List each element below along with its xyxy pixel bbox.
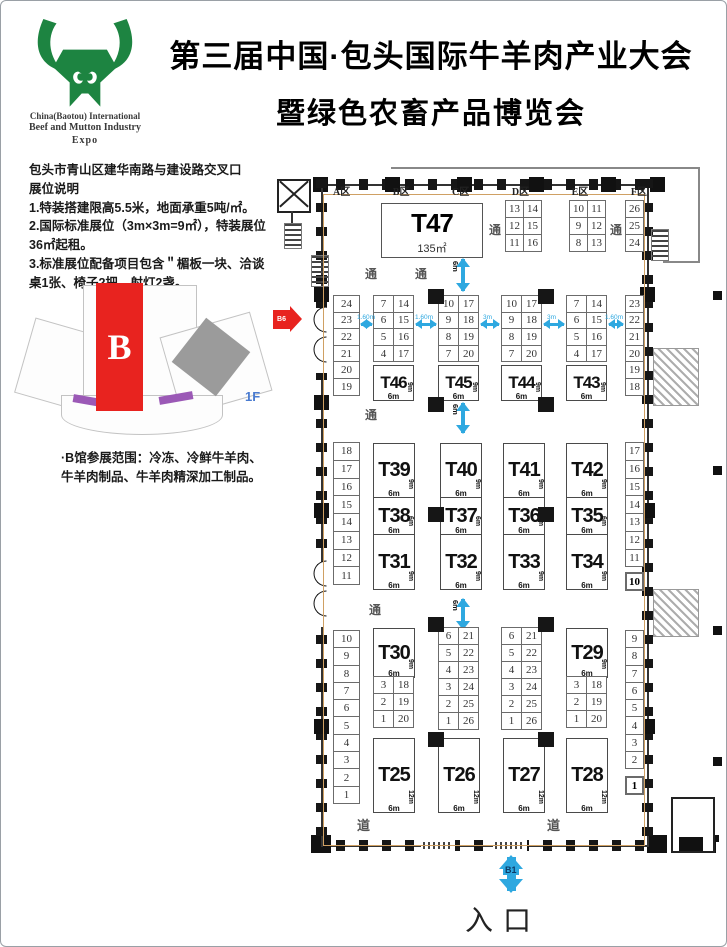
booth-number-cell: 10 — [501, 295, 522, 313]
booth-depth-label: 12m — [407, 790, 414, 804]
pillar — [428, 507, 444, 522]
aisle-width-label: 6m — [451, 600, 460, 611]
booth-depth-label: 9m — [599, 382, 606, 392]
booth-number-column: 14151617 — [393, 296, 414, 362]
booth-label: T36 — [508, 505, 539, 528]
booth-number-cell: 7 — [438, 345, 459, 363]
booth-number-cell: 20 — [586, 710, 607, 728]
booth-number-cell: 10 — [569, 200, 588, 218]
booth-number-cell: 22 — [521, 644, 542, 662]
booth-label: T33 — [508, 551, 539, 574]
booth-number-cell: 14 — [523, 200, 542, 218]
booth-label: T31 — [378, 551, 409, 574]
zone-label-c: C区 — [452, 183, 469, 198]
aisle-width-arrow — [461, 403, 465, 433]
booth-number-cell: 2 — [373, 693, 394, 711]
booth-number-cell: 11 — [505, 234, 524, 252]
booth-number-cell: 7 — [333, 682, 360, 700]
outer-column — [713, 626, 722, 635]
booth-t39: T39 6m 9m — [373, 443, 415, 498]
booth-t29: T29 6m 9m — [566, 628, 608, 678]
booth-number-column: 7654 — [373, 296, 394, 362]
gap-arrow — [416, 323, 436, 326]
booth-number-cell: 5 — [333, 716, 360, 734]
booth-number-cell: 9 — [333, 647, 360, 665]
booth-number-cell: 23 — [458, 661, 479, 679]
gap-width-label: 3m — [547, 314, 556, 321]
stairs-icon — [284, 223, 302, 249]
pillar — [538, 732, 554, 747]
hatched-service-area — [653, 589, 699, 637]
pillar — [538, 507, 554, 522]
booth-number-cell: 1 — [438, 712, 459, 730]
booth-number-cell: 22 — [333, 328, 360, 346]
booth-number-cell: 26 — [458, 712, 479, 730]
booth-number-cell: 20 — [625, 345, 644, 363]
booth-number-cell: 17 — [625, 442, 644, 461]
booth-number-column: 1 — [625, 777, 644, 795]
gap-width-label: 1.60m — [415, 314, 433, 321]
hall-b-letter: B — [107, 326, 131, 368]
booth-t40: T40 6m 9m — [440, 443, 482, 498]
gap-width-label: 1.60m — [605, 314, 623, 321]
zone-label-b: B区 — [393, 183, 410, 198]
booth-number-column: 17181920 — [458, 296, 479, 362]
booth-number-cell: 14 — [586, 295, 607, 313]
booth-number-cell: 19 — [521, 328, 542, 346]
page-title: 第三届中国·包头国际牛羊肉产业大会 暨绿色农畜产品博览会 — [141, 31, 721, 132]
booth-number-cell: 20 — [393, 710, 414, 728]
booth-number-cell: 18 — [586, 676, 607, 694]
booth-number-cell: 18 — [625, 378, 644, 396]
booth-depth-label: 9m — [600, 479, 607, 489]
booth-number-cell: 18 — [393, 676, 414, 694]
booth-label: T37 — [445, 505, 476, 528]
booth-number-cell: 9 — [625, 630, 644, 648]
zone-label-d: D区 — [512, 183, 529, 198]
booth-depth-label: 6m — [600, 516, 607, 526]
venue-address: 包头市青山区建华南路与建设路交叉口 — [29, 161, 267, 180]
booth-number-column: 1098 — [569, 201, 588, 252]
booth-number-cell: 11 — [625, 549, 644, 568]
pillar — [428, 617, 444, 632]
booth-number-column: 14151617 — [586, 296, 607, 362]
booth-number-cell: 23 — [521, 661, 542, 679]
note-2: 2.国际标准展位（3m×3m=9㎡），特装展位36㎡起租。 — [29, 217, 267, 255]
booth-number-cell: 2 — [333, 768, 360, 786]
booth-t31: T31 6m 9m — [373, 534, 415, 590]
road-label: 道 — [547, 815, 560, 834]
booth-depth-label: 9m — [534, 382, 541, 392]
booth-number-column: 17181920 — [521, 296, 542, 362]
booth-number-cell: 12 — [333, 549, 360, 568]
pillar — [538, 397, 554, 412]
booth-number-cell: 24 — [521, 678, 542, 696]
booth-number-column: 181920 — [586, 677, 607, 728]
booth-depth-label: 9m — [407, 659, 414, 669]
booth-t41: T41 6m 9m — [503, 443, 545, 498]
booth-label: T44 — [508, 373, 534, 393]
gate-b6-label: B6 — [273, 310, 290, 329]
booth-number-column: 262524 — [625, 201, 644, 252]
booth-t42: T42 6m 9m — [566, 443, 608, 498]
booth-number-cell: 21 — [333, 345, 360, 363]
booth-number-cell: 3 — [625, 734, 644, 752]
booth-number-column: 7654 — [566, 296, 587, 362]
booth-width-label: 6m — [502, 392, 541, 401]
booth-number-cell: 13 — [333, 531, 360, 550]
booth-number-column: 10987654321 — [333, 631, 360, 804]
booth-depth-label: 9m — [407, 571, 414, 581]
booth-label: T35 — [571, 505, 602, 528]
booth-number-column: 321 — [566, 677, 587, 728]
booth-number-cell: 1 — [333, 786, 360, 804]
booth-number-cell: 16 — [393, 328, 414, 346]
booth-t26: T26 6m 12m — [438, 738, 480, 813]
booth-t27: T27 6m 12m — [503, 738, 545, 813]
booth-number-cell: 15 — [625, 478, 644, 497]
outer-wall-line-top — [391, 167, 700, 169]
bull-head-icon — [30, 19, 140, 111]
booth-number-cell: 8 — [501, 328, 522, 346]
booth-number-cell: 19 — [393, 693, 414, 711]
booth-label: T26 — [443, 764, 474, 787]
booth-number-cell: 4 — [373, 345, 394, 363]
gap-arrow — [609, 323, 623, 326]
booth-number-cell: 6 — [625, 682, 644, 700]
entrance-gate-label: B1 — [503, 865, 519, 875]
booth-number-cell: 10 — [625, 572, 644, 591]
booth-number-cell: 4 — [625, 716, 644, 734]
title-line1: 第三届中国·包头国际牛羊肉产业大会 — [141, 31, 721, 76]
booth-t47: T47 135㎡ — [381, 203, 483, 258]
booth-number-cell: 3 — [373, 676, 394, 694]
booth-t30: T30 6m 9m — [373, 628, 415, 678]
zone-label-f: F区 — [631, 183, 647, 198]
booth-number-cell: 14 — [393, 295, 414, 313]
booth-depth-label: 9m — [474, 571, 481, 581]
booth-number-column: 181920 — [393, 677, 414, 728]
hatched-service-area — [653, 348, 699, 406]
booth-number-column: 10987 — [501, 296, 522, 362]
booth-number-cell: 19 — [333, 378, 360, 396]
booth-number-column: 321 — [373, 677, 394, 728]
booth-number-cell: 12 — [505, 217, 524, 235]
booth-number-cell: 17 — [393, 345, 414, 363]
outer-wall-line-right — [698, 167, 700, 263]
booth-label: T34 — [571, 551, 602, 574]
booth-number-cell: 3 — [333, 751, 360, 769]
booth-number-column: 212223242526 — [458, 628, 479, 730]
booth-number-column: 242322212019 — [333, 296, 360, 396]
booth-number-cell: 4 — [501, 661, 522, 679]
booth-number-cell: 13 — [625, 513, 644, 532]
aisle-width-label: 6m — [451, 404, 460, 415]
booth-number-cell: 21 — [625, 328, 644, 346]
gap-width-label: 1.60m — [357, 314, 375, 321]
aisle-label: 通 — [489, 221, 501, 238]
stairs-icon — [651, 229, 669, 261]
booth-number-cell: 1 — [501, 712, 522, 730]
aisle-label: 通 — [610, 221, 622, 238]
booth-number-cell: 5 — [566, 328, 587, 346]
booth-number-cell: 16 — [586, 328, 607, 346]
booth-number-cell: 8 — [625, 647, 644, 665]
booth-number-column: 212223242526 — [521, 628, 542, 730]
pillar — [428, 397, 444, 412]
booth-depth-label: 12m — [537, 790, 544, 804]
booth-number-column: 131211 — [505, 201, 524, 252]
notes-heading: 展位说明 — [29, 180, 267, 199]
hall-b-marker: B — [96, 283, 143, 411]
booth-number-column: 654321 — [501, 628, 522, 730]
booth-number-cell: 5 — [501, 644, 522, 662]
booth-t25: T25 6m 12m — [373, 738, 415, 813]
booth-number-column: 232221201918 — [625, 296, 644, 396]
booth-number-cell: 11 — [333, 566, 360, 585]
booth-number-cell: 1 — [566, 710, 587, 728]
aisle-width-label: 6m — [451, 261, 460, 272]
booth-label: T45 — [445, 373, 471, 393]
booth-number-cell: 5 — [438, 644, 459, 662]
booth-t38: T38 6m 6m — [373, 497, 415, 535]
booth-number-cell: 12 — [625, 531, 644, 550]
booth-number-column: 98765432 — [625, 631, 644, 769]
expo-logo: China(Baotou) International Beef and Mut… — [15, 19, 155, 147]
booth-number-cell: 2 — [625, 751, 644, 769]
booth-depth-label: 9m — [474, 479, 481, 489]
booth-number-cell: 24 — [625, 234, 644, 252]
gap-arrow — [544, 323, 564, 326]
gap-arrow — [361, 323, 372, 326]
booth-notes-panel: 包头市青山区建华南路与建设路交叉口 展位说明 1.特装搭建限高5.5米，地面承重… — [29, 161, 267, 292]
booth-number-column: 10 — [625, 573, 644, 591]
booth-number-cell: 7 — [373, 295, 394, 313]
booth-number-cell: 24 — [333, 295, 360, 313]
booth-number-column: 141516 — [523, 201, 542, 252]
booth-t37: T37 6m 6m — [440, 497, 482, 535]
booth-depth-label: 9m — [406, 382, 413, 392]
booth-label: T42 — [571, 459, 602, 482]
booth-number-cell: 7 — [501, 345, 522, 363]
booth-number-cell: 1 — [625, 776, 644, 795]
booth-number-cell: 13 — [587, 234, 606, 252]
booth-number-cell: 19 — [586, 693, 607, 711]
booth-number-cell: 20 — [458, 345, 479, 363]
booth-width-label: 6m — [504, 581, 544, 590]
booth-depth-label: 12m — [472, 790, 479, 804]
zone-label-a: A区 — [333, 183, 350, 198]
entrance-label: 入口 — [465, 899, 541, 939]
booth-number-cell: 2 — [501, 695, 522, 713]
booth-label: T27 — [508, 764, 539, 787]
booth-number-column: 17161514131211 — [625, 443, 644, 567]
logo-text-line1: China(Baotou) International — [15, 111, 155, 122]
booth-number-cell: 17 — [586, 345, 607, 363]
booth-number-cell: 19 — [458, 328, 479, 346]
booth-number-cell: 9 — [569, 217, 588, 235]
booth-width-label: 6m — [504, 804, 544, 813]
booth-label: T39 — [378, 459, 409, 482]
booth-label: T40 — [445, 459, 476, 482]
outer-wall-connector — [663, 261, 700, 263]
booth-t32: T32 6m 9m — [440, 534, 482, 590]
booth-number-cell: 16 — [333, 478, 360, 497]
booth-number-cell: 3 — [566, 676, 587, 694]
booth-width-label: 6m — [374, 392, 413, 401]
booth-t35: T35 6m 6m — [566, 497, 608, 535]
gap-arrow — [481, 323, 499, 326]
booth-depth-label: 6m — [474, 516, 481, 526]
booth-number-cell: 21 — [458, 627, 479, 645]
booth-number-cell: 5 — [625, 699, 644, 717]
booth-number-cell: 13 — [505, 200, 524, 218]
booth-width-label: 6m — [374, 581, 414, 590]
booth-number-cell: 8 — [438, 328, 459, 346]
booth-number-cell: 24 — [458, 678, 479, 696]
booth-number-column: 10987 — [438, 296, 459, 362]
booth-t44: T44 6m 9m — [501, 365, 542, 401]
booth-t34: T34 6m 9m — [566, 534, 608, 590]
booth-number-cell: 23 — [625, 295, 644, 313]
booth-number-cell: 22 — [458, 644, 479, 662]
aisle-label: 通 — [415, 265, 427, 282]
booth-number-cell: 8 — [333, 665, 360, 683]
pillar — [428, 732, 444, 747]
booth-number-cell: 26 — [625, 200, 644, 218]
hall-b-scope-text: ·B馆参展范围：冷冻、冷鲜牛羊肉、牛羊肉制品、牛羊肉精深加工制品。 — [61, 449, 266, 488]
booth-depth-label: 9m — [600, 659, 607, 669]
booth-label: T28 — [571, 764, 602, 787]
booth-number-cell: 20 — [521, 345, 542, 363]
booth-number-cell: 7 — [625, 665, 644, 683]
booth-number-cell: 19 — [625, 361, 644, 379]
booth-number-cell: 25 — [458, 695, 479, 713]
booth-label: T30 — [378, 642, 409, 665]
booth-number-cell: 5 — [373, 328, 394, 346]
expo-floorplan-poster: China(Baotou) International Beef and Mut… — [0, 0, 727, 947]
booth-number-cell: 6 — [333, 699, 360, 717]
booth-width-label: 6m — [567, 804, 607, 813]
booth-label: T43 — [573, 373, 599, 393]
floor-tag: 1F — [245, 389, 260, 404]
booth-number-cell: 3 — [438, 678, 459, 696]
booth-number-cell: 1 — [373, 710, 394, 728]
booth-label: T38 — [378, 505, 409, 528]
booth-t47-label: T47 — [382, 208, 482, 239]
booth-number-cell: 3 — [501, 678, 522, 696]
booth-t43: T43 6m 9m — [566, 365, 607, 401]
outer-column — [713, 466, 722, 475]
booth-number-cell: 17 — [458, 295, 479, 313]
booth-number-cell: 2 — [566, 693, 587, 711]
booth-number-cell: 17 — [333, 460, 360, 479]
booth-t28: T28 6m 12m — [566, 738, 608, 813]
booth-depth-label: 9m — [407, 479, 414, 489]
booth-number-cell: 12 — [587, 217, 606, 235]
booth-label: T29 — [571, 642, 602, 665]
booth-number-cell: 8 — [569, 234, 588, 252]
booth-label: T25 — [378, 764, 409, 787]
booth-number-cell: 14 — [333, 513, 360, 532]
aisle-label: 通 — [365, 265, 377, 282]
booth-number-cell: 16 — [625, 460, 644, 479]
gap-width-label: 3m — [483, 314, 492, 321]
booth-number-cell: 11 — [587, 200, 606, 218]
gate-b6-arrowhead — [290, 306, 302, 332]
corner-room-block — [679, 837, 703, 851]
booth-depth-label: 9m — [471, 382, 478, 392]
road-label: 道 — [357, 815, 370, 834]
aisle-label: 通 — [369, 601, 381, 618]
booth-label: T32 — [445, 551, 476, 574]
booth-number-cell: 6 — [501, 627, 522, 645]
venue-overview-map: B 1F — [21, 277, 266, 445]
booth-depth-label: 9m — [537, 479, 544, 489]
outer-column — [713, 291, 722, 300]
gate-b6-arrow: B6 — [273, 306, 302, 332]
booth-number-cell: 25 — [625, 217, 644, 235]
title-line2: 暨绿色农畜产品博览会 — [141, 90, 721, 132]
pillar — [538, 289, 554, 304]
booth-label: T46 — [380, 373, 406, 393]
aisle-width-arrow — [461, 259, 465, 291]
zone-label-e: E区 — [572, 183, 589, 198]
booth-width-label: 6m — [567, 581, 607, 590]
booth-t33: T33 6m 9m — [503, 534, 545, 590]
elevator-icon — [277, 179, 311, 213]
booth-number-cell: 20 — [333, 361, 360, 379]
elevator-stem — [291, 211, 293, 223]
logo-text-line3: Expo — [15, 135, 155, 148]
booth-number-cell: 4 — [438, 661, 459, 679]
booth-number-cell: 4 — [333, 734, 360, 752]
outer-column — [713, 757, 722, 766]
booth-number-cell: 25 — [521, 695, 542, 713]
booth-number-cell: 14 — [625, 495, 644, 514]
booth-depth-label: 9m — [537, 571, 544, 581]
booth-number-cell: 16 — [523, 234, 542, 252]
aisle-label: 通 — [365, 406, 377, 423]
booth-number-cell: 7 — [566, 295, 587, 313]
booth-label: T41 — [508, 459, 539, 482]
hall-b-floor-plan: A区 B区 C区 D区 E区 F区 B6 T47 135㎡ 通 131211 1… — [273, 151, 727, 947]
booth-number-cell: 2 — [438, 695, 459, 713]
booth-depth-label: 12m — [600, 790, 607, 804]
booth-number-cell: 10 — [333, 630, 360, 648]
booth-t46: T46 6m 9m — [373, 365, 414, 401]
logo-text-line2: Beef and Mutton Industry — [15, 122, 155, 135]
booth-width-label: 6m — [374, 804, 414, 813]
booth-number-column: 654321 — [438, 628, 459, 730]
booth-number-cell: 26 — [521, 712, 542, 730]
booth-number-cell: 15 — [523, 217, 542, 235]
zone-label-row: A区 B区 C区 D区 E区 F区 — [333, 183, 647, 198]
booth-number-cell: 18 — [333, 442, 360, 461]
booth-width-label: 6m — [567, 392, 606, 401]
pillar — [428, 289, 444, 304]
note-1: 1.特装搭建限高5.5米，地面承重5吨/㎡。 — [29, 199, 267, 218]
pillar — [538, 617, 554, 632]
booth-number-cell: 4 — [566, 345, 587, 363]
booth-width-label: 6m — [441, 581, 481, 590]
booth-number-column: 1817161514131211 — [333, 443, 360, 585]
booth-depth-label: 6m — [407, 516, 414, 526]
aisle-width-arrow — [461, 599, 465, 629]
booth-number-cell: 15 — [333, 495, 360, 514]
booth-depth-label: 9m — [600, 571, 607, 581]
booth-number-column: 111213 — [587, 201, 606, 252]
